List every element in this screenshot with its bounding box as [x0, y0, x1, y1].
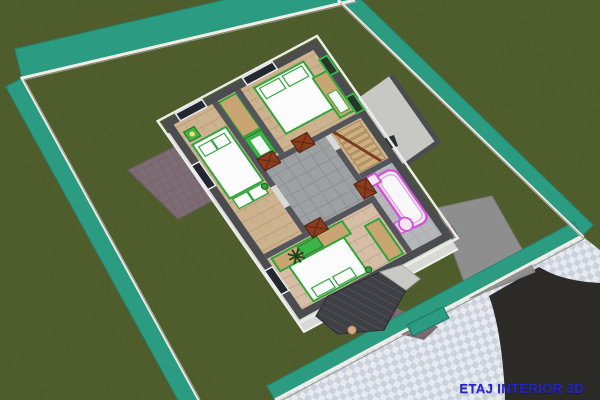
viewport-3d[interactable]: ETAJ INTERIOR 3D: [0, 0, 600, 400]
porch-post-cap: [348, 326, 356, 334]
floorplan-render: [0, 0, 600, 400]
render-caption: ETAJ INTERIOR 3D: [459, 381, 584, 396]
